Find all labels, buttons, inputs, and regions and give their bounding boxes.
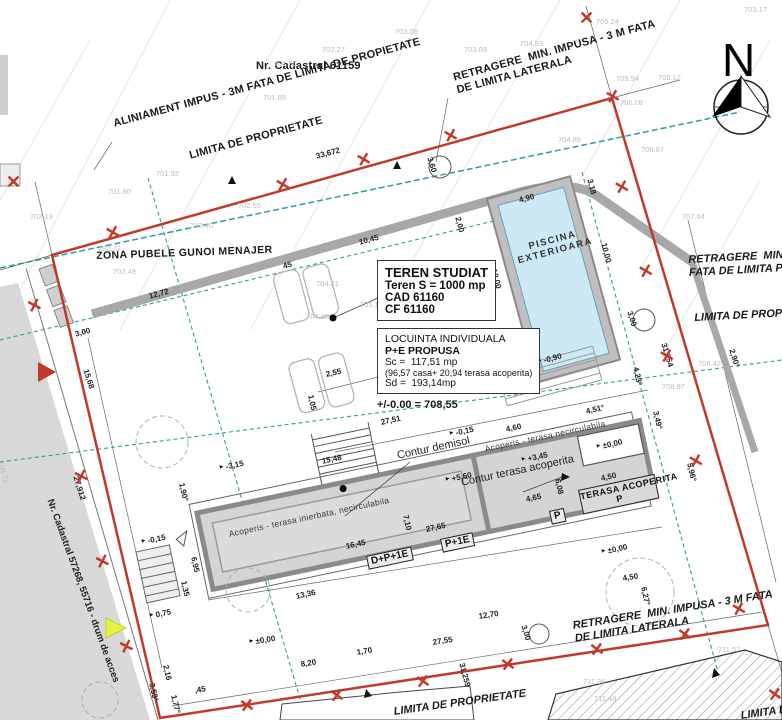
boundary-x-mark: ✕	[89, 551, 113, 572]
dimension-label: 6,27°	[639, 586, 652, 606]
boundary-x-mark: ✕	[766, 684, 782, 707]
dimension-label: 1,90°	[177, 482, 190, 502]
level-flag-icon: ►	[140, 538, 147, 545]
elevation-label: 711.36	[583, 678, 605, 687]
dimension-label: 7,10	[401, 514, 413, 531]
label-aliniament: ALINIAMENT IMPUS - 3M FATA DE LIMITA DE …	[112, 36, 422, 130]
dimension-label: ►±0,00	[600, 542, 628, 557]
dimension-label: ►0,75	[148, 607, 172, 621]
label-terasa-acoperita: TERASA ACOPERITA P	[578, 474, 659, 514]
elevation-label: 701.89	[263, 94, 286, 103]
dimension-label: 27,55	[432, 635, 453, 647]
label-p1e: P+1E	[440, 532, 475, 552]
boundary-x-mark: ✕	[103, 221, 123, 245]
dimension-label: 3,53°	[147, 682, 160, 702]
elevation-label: 705.94	[616, 75, 639, 84]
level-flag-icon: ►	[448, 430, 455, 437]
dimension-label: 15,68	[81, 368, 96, 390]
label-limita-right: LIMITA DE PROPRIETA	[694, 306, 782, 325]
dimension-label: 1,35	[179, 580, 191, 597]
dimension-label: 4,60	[505, 422, 522, 434]
elevation-label: 705.24	[596, 18, 619, 27]
elevation-label: 704.93	[520, 40, 543, 49]
dimension-label: ►±0,00	[248, 634, 276, 647]
dimension-label: 3,00	[625, 310, 638, 328]
teren-cf: CF 61160	[385, 304, 488, 316]
dimension-label: 12,72	[148, 287, 170, 301]
elevation-label: 711.57	[718, 646, 740, 655]
elevation-label: 702.19	[30, 213, 53, 222]
dimension-label: 10,45	[358, 233, 380, 247]
teren-cad: CAD 61160	[385, 292, 488, 304]
teren-title: TEREN STUDIAT	[385, 265, 488, 280]
dimension-label: 3,00	[519, 624, 532, 642]
boundary-x-mark: ✕	[273, 173, 293, 197]
dimension-label: 45	[282, 260, 293, 271]
boundary-x-mark: ✕	[441, 124, 461, 148]
level-flag-icon: ►	[600, 548, 607, 555]
locuinta-box: LOCUINTA INDIVIDUALA P+E PROPUSA Sc = 11…	[377, 328, 540, 394]
level-flag-icon: ►	[444, 476, 451, 483]
elevation-label: 702.40	[190, 222, 213, 231]
dimension-label: 3,60	[425, 156, 438, 174]
dimension-label: 27,65	[425, 521, 447, 534]
boundary-x-mark: ✕	[113, 636, 137, 657]
boundary-x-mark: ✕	[676, 624, 694, 647]
locuinta-sc: Sc = 117,51 mp	[385, 357, 532, 368]
elevation-label: 704.89	[558, 136, 581, 145]
dimension-label: 2,55	[325, 367, 342, 379]
dimension-label: 10,00	[599, 242, 613, 264]
level-note: +/-0.00 = 708,55	[377, 399, 458, 412]
elevation-label: 706.87	[641, 146, 664, 155]
locuinta-detail: (96,57 casa+ 20,94 terasa acoperita)	[385, 368, 532, 378]
locuinta-regime: P+E PROPUSA	[385, 345, 532, 357]
label-zona-pubele: ZONA PUBELE GUNOI MENAJER	[96, 244, 273, 262]
label-drum-acces: Nr. Cadastral 57268, 55716 - drum de acc…	[44, 498, 121, 684]
dimension-label: 8,20	[300, 658, 317, 670]
level-flag-icon: ►	[218, 464, 225, 471]
locuinta-sd: Sd = 193,14mp	[385, 378, 532, 389]
dimension-label: 2,00	[453, 216, 466, 233]
boundary-x-mark: ✕	[579, 8, 594, 29]
dimension-label: 3,18	[585, 178, 598, 195]
dimension-label: 2,90°	[727, 348, 741, 369]
dimension-label: 31,259	[457, 662, 472, 688]
label-retragere-top: RETRAGERE MIN. IMPUSA - 3 M FATA DE LIMI…	[452, 18, 660, 96]
label-retragere-bottom: RETRAGERE MIN. IMPUSA - 3 M FATA DE LIMI…	[572, 588, 776, 645]
teren-studiat-box: TEREN STUDIAT Teren S = 1000 mp CAD 6116…	[377, 260, 496, 321]
elevation-label: 703.17	[744, 6, 767, 15]
boundary-x-mark: ✕	[328, 685, 346, 708]
level-flag-icon: ►	[520, 456, 527, 463]
dimension-label: 4,23°	[631, 366, 644, 386]
boundary-x-mark: ✕	[683, 451, 707, 471]
dimension-label: 2,16	[161, 664, 173, 681]
dimension-label: 6,08	[553, 478, 565, 495]
dimension-label: 1,70	[356, 646, 373, 658]
boundary-x-mark: ✕	[499, 654, 517, 677]
elevation-label: 707.64	[682, 213, 705, 222]
elevation-label: 708.72	[0, 460, 10, 484]
elevation-label: 708.97	[662, 383, 685, 392]
dimension-label: 33,672	[315, 146, 341, 161]
north-letter: N	[722, 34, 755, 87]
elevation-label: 703.08	[395, 28, 418, 37]
boundary-x-mark: ✕	[68, 466, 92, 487]
elevation-label: 706.08	[620, 99, 643, 108]
dimension-label: 6,95	[189, 556, 201, 573]
elevation-label: 702.72	[98, 245, 121, 254]
elevation-label: 704.21	[316, 280, 339, 289]
label-p: P	[549, 508, 566, 524]
boundary-x-mark: ✕	[6, 172, 21, 193]
boundary-x-mark: ✕	[21, 295, 45, 316]
elevation-label: 711.48	[594, 695, 616, 704]
dimension-label: 3,49°	[651, 410, 664, 430]
boundary-x-mark: ✕	[238, 695, 256, 718]
elevation-label: 701.92	[156, 170, 179, 179]
boundary-x-mark: ✕	[354, 148, 374, 172]
elevation-label: 708.42	[698, 360, 721, 369]
dimension-label: 15,48	[321, 453, 343, 466]
dimension-label: 1,77°	[169, 694, 182, 714]
elevation-label: 702.55	[238, 202, 261, 211]
dimension-label: 13,36	[295, 588, 317, 601]
dimension-label: 4,51°	[585, 403, 605, 416]
boundary-x-mark: ✕	[603, 85, 623, 109]
label-limita-bottom-center: LIMITA DE PROPRIETATE	[393, 687, 527, 718]
level-flag-icon: ►	[148, 612, 155, 619]
label-dp1e: D+P+1E	[366, 546, 414, 569]
elevation-label: 705.12	[658, 74, 681, 83]
label-acoperis-necirculabila: Acoperis - terasa necirculabila	[484, 419, 607, 454]
elevation-label: 704.98	[306, 313, 329, 322]
dimension-label: 27,51	[380, 414, 402, 427]
teren-area: Teren S = 1000 mp	[385, 280, 488, 292]
site-plan: Nr. Cadastral 61159RETRAGERE MIN. IMPUSA…	[0, 0, 782, 720]
boundary-x-mark: ✕	[633, 261, 657, 281]
level-flag-icon: ►	[595, 443, 602, 450]
label-piscina: PISCINA EXTERIOARA	[514, 226, 594, 267]
dimension-label: 1,05	[306, 394, 318, 411]
elevation-label: 703.69	[464, 46, 487, 55]
elevation-label: 702.27	[322, 46, 345, 55]
dimension-label: ►-0,15	[140, 533, 167, 547]
dimension-label: 3,00	[74, 326, 91, 339]
boundary-x-mark: ✕	[414, 671, 432, 694]
elevation-label: 701.56	[274, 60, 297, 69]
level-flag-icon: ►	[248, 638, 255, 645]
dimension-label: 4,50	[622, 572, 639, 584]
boundary-x-mark: ✕	[588, 639, 606, 662]
boundary-x-mark: ✕	[609, 177, 633, 197]
dimension-label: 4,90	[518, 192, 535, 205]
locuinta-title: LOCUINTA INDIVIDUALA	[385, 333, 532, 345]
label-limita-top: LIMITA DE PROPRIETATE	[188, 114, 324, 162]
elevation-label: 701.80	[108, 188, 131, 197]
label-contur-demisol: Contur demisol	[396, 435, 471, 463]
dimension-label: 4,65	[525, 492, 542, 504]
dimension-label: ►±0,00	[595, 437, 623, 452]
dimension-label: ►-3,15	[218, 459, 245, 473]
dimension-label: ,45	[194, 684, 206, 695]
label-acoperis-inierbata: Acoperis - terasa inierbata, necirculabi…	[228, 496, 390, 540]
label-retragere-post: RETRAGERE MIN. IMPU FATA DE LIMITA POSTE	[688, 247, 782, 279]
dimension-label: 12,70	[478, 609, 499, 621]
elevation-label: 702.49	[113, 268, 136, 277]
dimension-label: 16,45	[345, 538, 367, 551]
